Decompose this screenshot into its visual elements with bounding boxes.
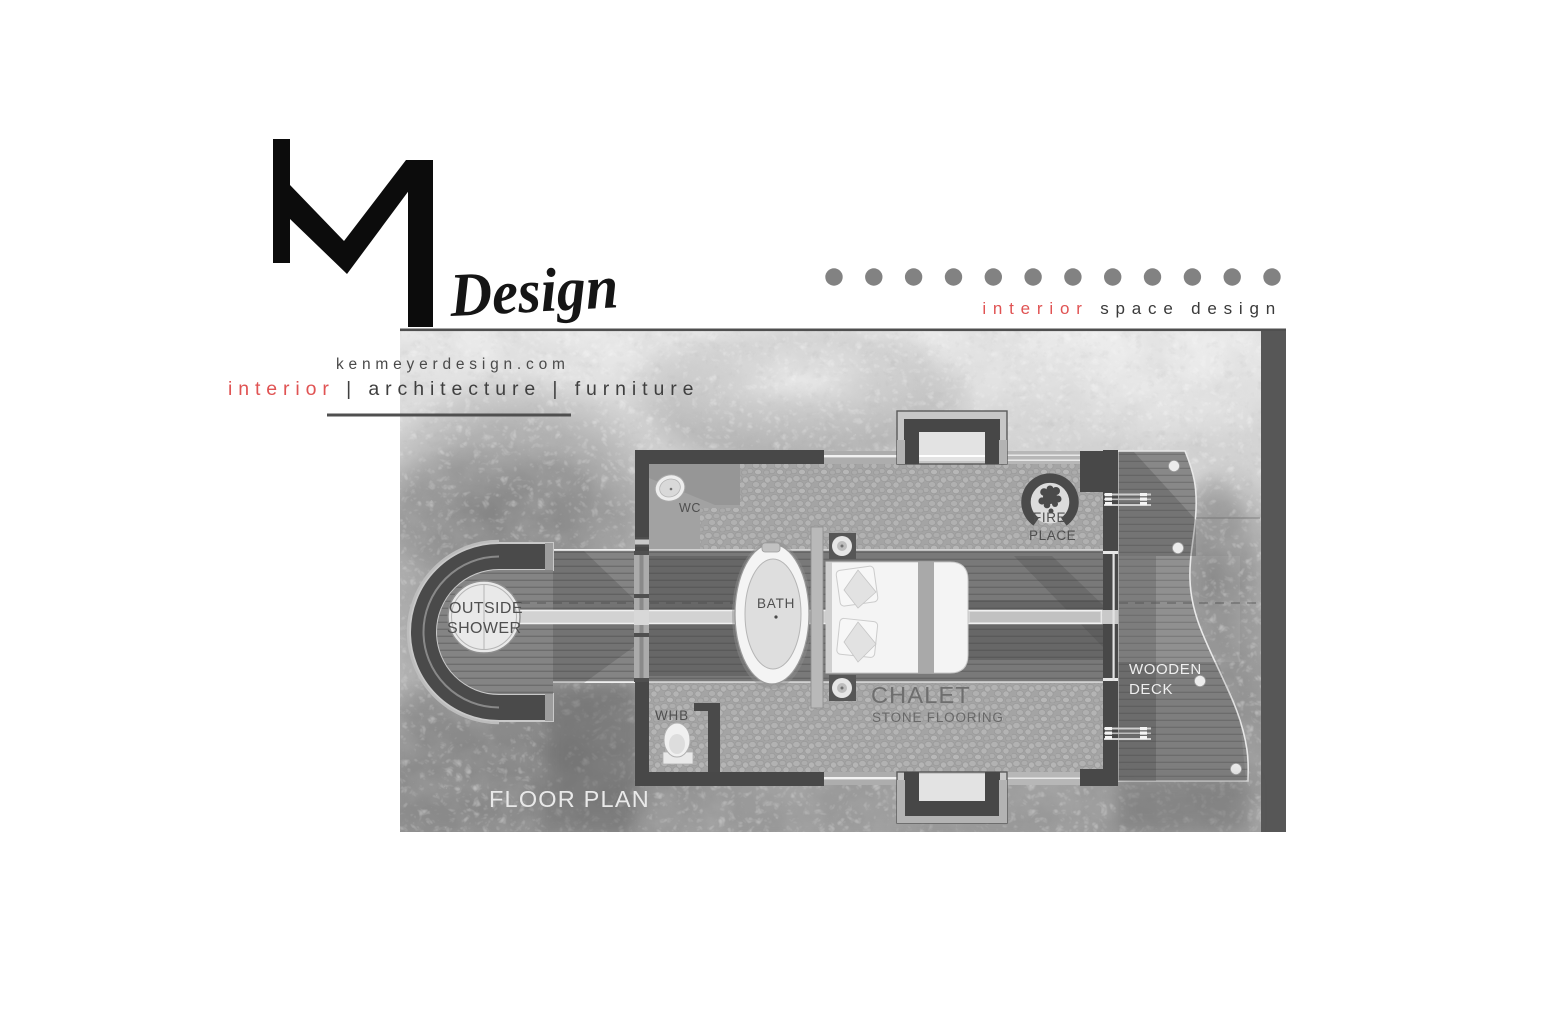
svg-text:interior space design: interior space design xyxy=(982,299,1282,318)
svg-text:Design: Design xyxy=(447,253,620,331)
svg-text:CHALET: CHALET xyxy=(871,682,971,708)
svg-text:PLACE: PLACE xyxy=(1029,528,1076,543)
svg-text:WOODEN: WOODEN xyxy=(1129,661,1202,678)
svg-text:kenmeyerdesign.com: kenmeyerdesign.com xyxy=(336,356,570,373)
svg-text:SHOWER: SHOWER xyxy=(447,620,521,637)
svg-text:BATH: BATH xyxy=(757,596,795,611)
svg-text:interior | architecture | furn: interior | architecture | furniture xyxy=(228,378,699,400)
svg-text:DECK: DECK xyxy=(1129,681,1173,698)
svg-text:FIRE: FIRE xyxy=(1033,510,1066,525)
svg-text:STONE FLOORING: STONE FLOORING xyxy=(872,710,1004,725)
svg-text:WC: WC xyxy=(679,501,701,515)
svg-text:FLOOR PLAN: FLOOR PLAN xyxy=(489,786,650,812)
svg-text:OUTSIDE: OUTSIDE xyxy=(449,600,523,617)
svg-text:WHB: WHB xyxy=(655,708,689,723)
